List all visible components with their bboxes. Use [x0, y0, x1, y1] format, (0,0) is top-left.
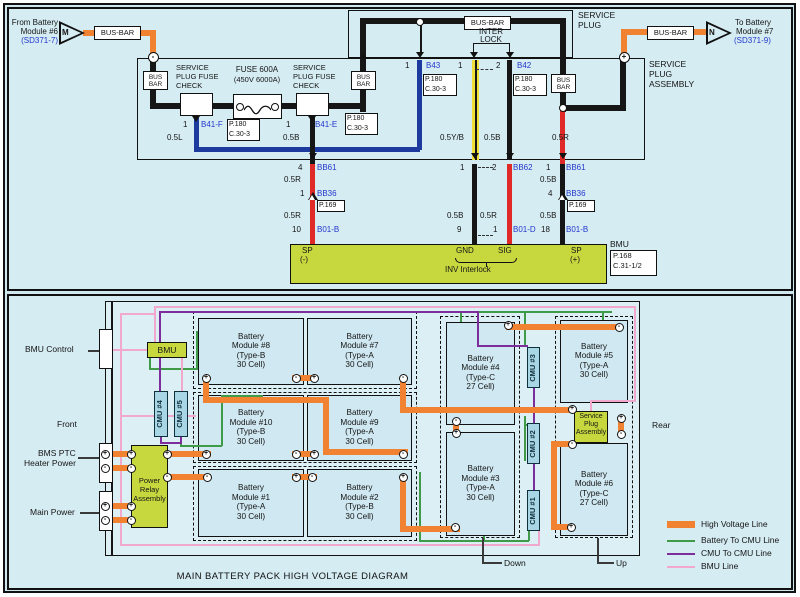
battery-module-2-label: 30 Cell) — [307, 513, 412, 522]
battery-module-1-label: Battery — [198, 484, 304, 493]
terminal-plus: + — [101, 502, 110, 511]
label: BAR — [143, 81, 168, 88]
label: BUS — [351, 74, 376, 81]
blk-wire — [560, 105, 626, 111]
label: 1 — [300, 190, 304, 199]
pnk-wire — [154, 306, 156, 343]
pnk-wire — [113, 349, 147, 351]
battery-module-2-label: (Type-B — [307, 503, 412, 512]
terminal-plus: + — [452, 429, 461, 438]
label: 18 — [541, 226, 550, 235]
label: SERVICE — [176, 64, 209, 72]
terminal-plus: + — [310, 450, 319, 459]
label: P.180 — [229, 121, 246, 129]
gry-wire — [482, 538, 484, 564]
battery-module-6-label: Module #6 — [560, 480, 628, 489]
main-power-connector — [99, 491, 113, 531]
terminal-plus: + — [310, 374, 319, 383]
battery-module-6-label: 27 Cell) — [560, 499, 628, 508]
battery-module-1-label: (Type-A — [198, 503, 304, 512]
label: BMS PTC — [38, 449, 76, 458]
label: C.30-3 — [229, 131, 250, 139]
battery-module-8-label: Module #8 — [198, 342, 304, 351]
label: 1 — [286, 121, 290, 130]
terminal-plus: + — [567, 523, 576, 532]
label: BUS-BAR — [464, 19, 511, 27]
label: (450V 6000A) — [222, 76, 292, 84]
flow-arrow-icon — [416, 52, 424, 58]
pnk-wire — [181, 357, 183, 391]
label: 1 — [458, 62, 462, 71]
label: BB61 — [317, 164, 337, 173]
legend-swatch-hv — [667, 521, 695, 528]
label: BUS-BAR — [94, 29, 141, 37]
terminal-plus: + — [568, 405, 577, 414]
legend-label: CMU To CMU Line — [701, 549, 772, 558]
label: BMU — [610, 240, 629, 249]
blu-wire — [417, 60, 422, 150]
battery-module-1-label: 30 Cell) — [198, 513, 304, 522]
label: PLUG — [649, 70, 672, 79]
label: 2 — [492, 164, 496, 173]
terminal-minus: - — [101, 516, 110, 525]
terminal-minus: - — [399, 374, 408, 383]
inline-connector-icon — [559, 195, 565, 200]
label: P.180 — [515, 76, 532, 84]
battery-module-5-label: Module #5 — [560, 352, 628, 361]
grn-wire — [196, 331, 198, 370]
flow-arrow-icon — [506, 52, 514, 58]
cmu-label: CMU #1 — [528, 488, 540, 534]
label: P.168 — [613, 252, 632, 260]
terminal-plus: + — [202, 450, 211, 459]
label: 1 — [546, 164, 550, 173]
flow-arrow-icon — [559, 153, 567, 159]
label: C.30-3 — [515, 86, 536, 94]
pur-wire — [533, 464, 535, 490]
terminal-plus: + — [504, 321, 513, 330]
label: Heater Power — [24, 459, 76, 468]
battery-module-8-label: 30 Cell) — [198, 361, 304, 370]
label: Front — [57, 420, 77, 429]
label: 9 — [457, 226, 461, 235]
label: SERVICE — [578, 11, 615, 20]
label: BUS-BAR — [647, 29, 694, 37]
terminal-minus: - — [615, 323, 624, 332]
label: BMU Control — [25, 345, 74, 354]
bms-ptc-connector — [99, 443, 113, 483]
label: 0.5B — [447, 212, 463, 221]
label: Down — [504, 559, 526, 568]
label: 1 — [183, 121, 187, 130]
junction-node — [559, 104, 567, 112]
terminal-plus: + — [127, 450, 136, 459]
terminal-plus: + — [163, 450, 172, 459]
blk-wire — [475, 60, 477, 160]
label: 0.5B — [283, 134, 299, 143]
label: 4 — [548, 190, 552, 199]
label: 10 — [292, 226, 301, 235]
pur-wire — [477, 311, 479, 346]
battery-module-10-label: (Type-B — [198, 428, 304, 437]
label: 0.5B — [540, 212, 556, 221]
hv-wire — [400, 479, 406, 532]
battery-module-7-label: Module #7 — [307, 342, 412, 351]
label: Rear — [652, 421, 670, 430]
blk-wire — [560, 18, 566, 112]
fuse-check-box — [296, 93, 329, 116]
grn-wire — [180, 445, 222, 447]
battery-module-3-label: Battery — [446, 465, 515, 474]
battery-module-2-label: Battery — [307, 484, 412, 493]
label: SERVICE — [293, 64, 326, 72]
bmu-control-connector — [99, 329, 113, 369]
junction-node — [416, 18, 424, 26]
label: 1 — [460, 164, 464, 173]
pur-wire — [160, 442, 182, 444]
blk-wire — [360, 18, 566, 24]
terminal-minus: - — [127, 516, 136, 525]
label: BB36 — [566, 190, 586, 199]
battery-module-4-label: 27 Cell) — [446, 383, 515, 392]
terminal-plus: + — [127, 502, 136, 511]
blu-wire — [194, 147, 420, 152]
legend-swatch-pnk — [667, 566, 695, 568]
flow-arrow-icon — [471, 153, 479, 159]
label: SERVICE — [649, 60, 686, 69]
label: B42 — [517, 62, 531, 71]
label: Assembly — [131, 495, 168, 503]
pnk-wire — [120, 313, 122, 546]
legend-label: High Voltage Line — [701, 520, 768, 529]
label: GND — [456, 247, 474, 256]
pur-wire — [180, 437, 182, 444]
fuse-element-icon — [244, 102, 271, 112]
pur-wire — [533, 388, 535, 423]
label: P.180 — [347, 115, 364, 123]
legend-label: BMU Line — [701, 562, 738, 571]
label: P.169 — [569, 202, 586, 210]
fuse-check-box — [180, 93, 213, 116]
battery-module-3-label: (Type-A — [446, 484, 515, 493]
label: 0.5R — [552, 134, 569, 143]
label: 4 — [298, 164, 302, 173]
label: ASSEMBLY — [649, 80, 694, 89]
label: BUS — [551, 77, 576, 84]
label: 1 — [405, 62, 409, 71]
diagram-caption: MAIN BATTERY PACK HIGH VOLTAGE DIAGRAM — [105, 571, 480, 582]
pnk-wire — [120, 313, 156, 315]
label: Main Power — [30, 508, 75, 517]
label: PLUG — [578, 21, 601, 30]
label: (+) — [570, 256, 580, 265]
inline-connector-icon — [309, 195, 315, 200]
terminal-minus: - — [127, 464, 136, 473]
label: 0.5L — [167, 134, 183, 143]
label: Assembly — [574, 429, 608, 437]
label: LOCK — [470, 36, 512, 45]
label: C.30-3 — [347, 125, 368, 133]
terminal-plus: + — [399, 473, 408, 482]
label: B41-F — [201, 121, 223, 130]
battery-module-3-label: 30 Cell) — [446, 494, 515, 503]
label: 0.5R — [480, 212, 497, 221]
connector-pair-link — [478, 167, 493, 168]
legend-swatch-pur — [667, 553, 695, 555]
label: 0.5B — [484, 134, 500, 143]
hv-wire — [323, 397, 329, 455]
label: P.180 — [425, 76, 442, 84]
pnk-wire — [120, 544, 540, 546]
connector-pair-link — [478, 235, 493, 236]
label: 2 — [496, 62, 500, 71]
label: B43 — [426, 62, 440, 71]
pnk-wire — [154, 306, 636, 308]
cmu-label: CMU #5 — [175, 391, 187, 437]
blk-wire — [472, 164, 477, 246]
label: CHECK — [176, 82, 202, 90]
terminal-minus: - — [452, 417, 461, 426]
label: C.30-3 — [425, 86, 446, 94]
terminal-plus: + — [292, 473, 301, 482]
cmu-label: CMU #2 — [528, 421, 540, 467]
terminal-minus: - — [568, 440, 577, 449]
legend-swatch-grn — [667, 540, 695, 542]
label: 0.5R — [284, 176, 301, 185]
terminal-minus: - — [292, 374, 301, 383]
terminal-minus: - — [163, 473, 172, 482]
red-wire — [507, 164, 512, 246]
flow-arrow-icon — [309, 153, 317, 159]
terminal-minus: - — [308, 473, 317, 482]
terminal-minus: - — [203, 473, 212, 482]
label: B01-D — [513, 226, 536, 235]
blu-wire — [194, 118, 199, 150]
pur-wire — [159, 311, 479, 313]
battery-module-7-label: 30 Cell) — [307, 361, 412, 370]
label: B01-B — [317, 226, 339, 235]
label: Relay — [131, 486, 168, 494]
label: BMU — [147, 346, 187, 355]
triangle-letter: N — [709, 29, 715, 38]
terminal-minus: - — [148, 52, 159, 63]
label: Plug — [574, 421, 608, 429]
label: P.169 — [319, 202, 336, 210]
pnk-wire — [590, 400, 636, 402]
label: (-) — [300, 256, 308, 265]
label: CHECK — [293, 82, 319, 90]
blk-wire — [420, 24, 422, 54]
hv-wire — [506, 324, 622, 330]
triangle-letter: M — [62, 29, 69, 38]
label: (SD371-7) — [8, 37, 58, 46]
terminal-plus: + — [202, 374, 211, 383]
terminal-plus: + — [619, 52, 630, 63]
gry-wire — [484, 562, 502, 564]
hv-wire — [203, 397, 329, 403]
hv-wire — [323, 449, 408, 455]
terminal-minus: - — [617, 430, 626, 439]
terminal-plus: + — [101, 450, 110, 459]
terminal-minus: - — [101, 464, 110, 473]
battery-module-4-label: Module #4 — [446, 364, 515, 373]
label: C.31-1/2 — [613, 262, 642, 270]
label: 0.5R — [284, 212, 301, 221]
cmu-label: CMU #3 — [528, 345, 540, 391]
battery-module-5-label: 30 Cell) — [560, 371, 628, 380]
label: 0.5Y/B — [440, 134, 464, 143]
battery-module-10-label: Battery — [198, 409, 304, 418]
label: 0.5B — [540, 176, 556, 185]
blk-wire — [507, 60, 512, 160]
flow-arrow-icon — [470, 52, 478, 58]
label: PLUG FUSE — [293, 73, 336, 81]
flow-arrow-icon — [192, 116, 200, 122]
label: BB62 — [513, 164, 533, 173]
terminal-minus: - — [399, 450, 408, 459]
terminal-minus: - — [292, 450, 301, 459]
hv-wire — [400, 407, 576, 413]
legend-label: Battery To CMU Line — [701, 536, 779, 545]
grouping-brace-tick — [486, 263, 487, 267]
blk-wire — [620, 60, 626, 110]
label: (SD371-9) — [734, 37, 771, 46]
label: INV Interlock — [445, 266, 491, 275]
label: BUS — [143, 74, 168, 81]
gry-wire — [599, 562, 614, 564]
pur-wire — [477, 345, 528, 347]
grn-wire — [149, 368, 197, 370]
label: PLUG FUSE — [176, 73, 219, 81]
terminal-plus: + — [617, 414, 626, 423]
label: BAR — [351, 81, 376, 88]
cmu-label: CMU #4 — [155, 391, 167, 437]
flow-arrow-icon — [506, 153, 514, 159]
blk-wire — [360, 20, 366, 112]
terminal-minus: - — [451, 523, 460, 532]
flow-arrow-icon — [359, 53, 367, 59]
hv-wire — [551, 441, 557, 530]
grn-wire — [524, 416, 526, 461]
label: FUSE 600A — [225, 66, 289, 75]
label: BAR — [551, 84, 576, 91]
connector-pair-link — [476, 69, 493, 70]
pnk-wire — [634, 306, 636, 402]
gry-wire — [597, 538, 599, 564]
bmu-inv-interlock-box — [290, 244, 607, 284]
grn-wire — [419, 540, 529, 542]
label: Up — [616, 559, 627, 568]
label: BB36 — [317, 190, 337, 199]
label: B01-B — [566, 226, 588, 235]
gry-wire — [80, 512, 101, 514]
label: Service — [574, 413, 608, 421]
label: BB61 — [566, 164, 586, 173]
gry-wire — [78, 457, 99, 459]
fuse-terminal — [271, 103, 279, 111]
label: 1 — [493, 226, 497, 235]
wiring-diagram-page: MAIN BATTERY PACK HIGH VOLTAGE DIAGRAM -… — [0, 0, 800, 597]
red-wire — [310, 164, 315, 246]
grn-wire — [602, 311, 604, 320]
grn-wire — [460, 311, 612, 313]
fuse-terminal — [236, 103, 244, 111]
blk-wire — [560, 164, 565, 246]
label: SIG — [498, 247, 512, 256]
label: B41-E — [315, 121, 337, 130]
